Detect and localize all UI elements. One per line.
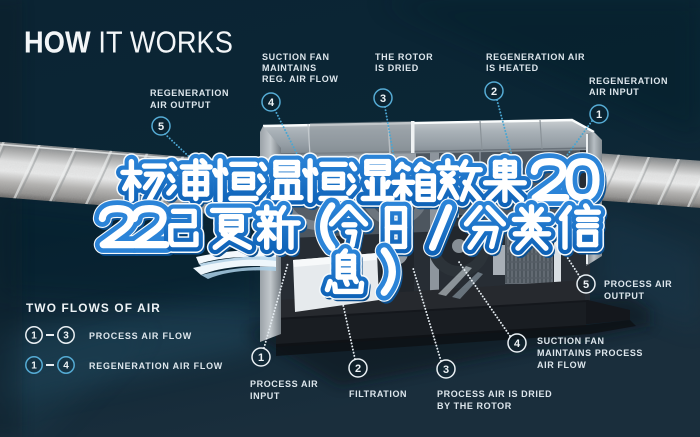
svg-text:REGENERATION AIR: REGENERATION AIR	[486, 52, 585, 62]
svg-text:REGENERATION: REGENERATION	[150, 88, 229, 98]
svg-text:BY THE ROTOR: BY THE ROTOR	[437, 401, 512, 411]
svg-text:2: 2	[355, 363, 361, 375]
svg-text:PROCESS AIR: PROCESS AIR	[250, 379, 318, 389]
svg-text:REG. AIR FLOW: REG. AIR FLOW	[262, 74, 338, 84]
svg-text:3: 3	[63, 331, 69, 342]
svg-text:TWO FLOWS OF AIR: TWO FLOWS OF AIR	[26, 301, 161, 315]
svg-text:3: 3	[380, 93, 386, 105]
svg-text:INPUT: INPUT	[250, 391, 280, 401]
svg-text:HOW IT WORKS: HOW IT WORKS	[24, 26, 233, 60]
svg-text:SUCTION FAN: SUCTION FAN	[262, 52, 330, 62]
svg-text:IS HEATED: IS HEATED	[486, 63, 539, 73]
svg-text:IS DRIED: IS DRIED	[375, 63, 419, 73]
svg-text:2: 2	[491, 86, 497, 98]
svg-text:AIR FLOW: AIR FLOW	[537, 360, 586, 370]
svg-text:PROCESS AIR IS DRIED: PROCESS AIR IS DRIED	[437, 389, 552, 399]
svg-text:5: 5	[583, 279, 589, 291]
svg-text:4: 4	[63, 361, 69, 372]
svg-text:PROCESS AIR FLOW: PROCESS AIR FLOW	[89, 331, 192, 341]
svg-text:4: 4	[514, 338, 521, 350]
svg-text:5: 5	[158, 121, 164, 133]
svg-text:1: 1	[596, 109, 602, 121]
svg-text:AIR INPUT: AIR INPUT	[589, 87, 639, 97]
svg-text:1: 1	[31, 361, 37, 372]
svg-text:AIR OUTPUT: AIR OUTPUT	[150, 100, 211, 110]
svg-text:OUTPUT: OUTPUT	[604, 291, 645, 301]
svg-text:MAINTAINS PROCESS: MAINTAINS PROCESS	[537, 348, 643, 358]
svg-text:PROCESS AIR: PROCESS AIR	[604, 279, 672, 289]
svg-text:SUCTION FAN: SUCTION FAN	[537, 336, 605, 346]
svg-text:1: 1	[258, 352, 264, 364]
svg-text:REGENERATION: REGENERATION	[589, 76, 668, 86]
svg-text:REGENERATION AIR FLOW: REGENERATION AIR FLOW	[89, 361, 223, 371]
svg-text:4: 4	[268, 97, 275, 109]
svg-text:1: 1	[31, 331, 37, 342]
svg-text:MAINTAINS: MAINTAINS	[262, 63, 317, 73]
svg-text:3: 3	[443, 364, 449, 376]
svg-text:THE ROTOR: THE ROTOR	[375, 52, 433, 62]
svg-text:FILTRATION: FILTRATION	[349, 389, 407, 399]
